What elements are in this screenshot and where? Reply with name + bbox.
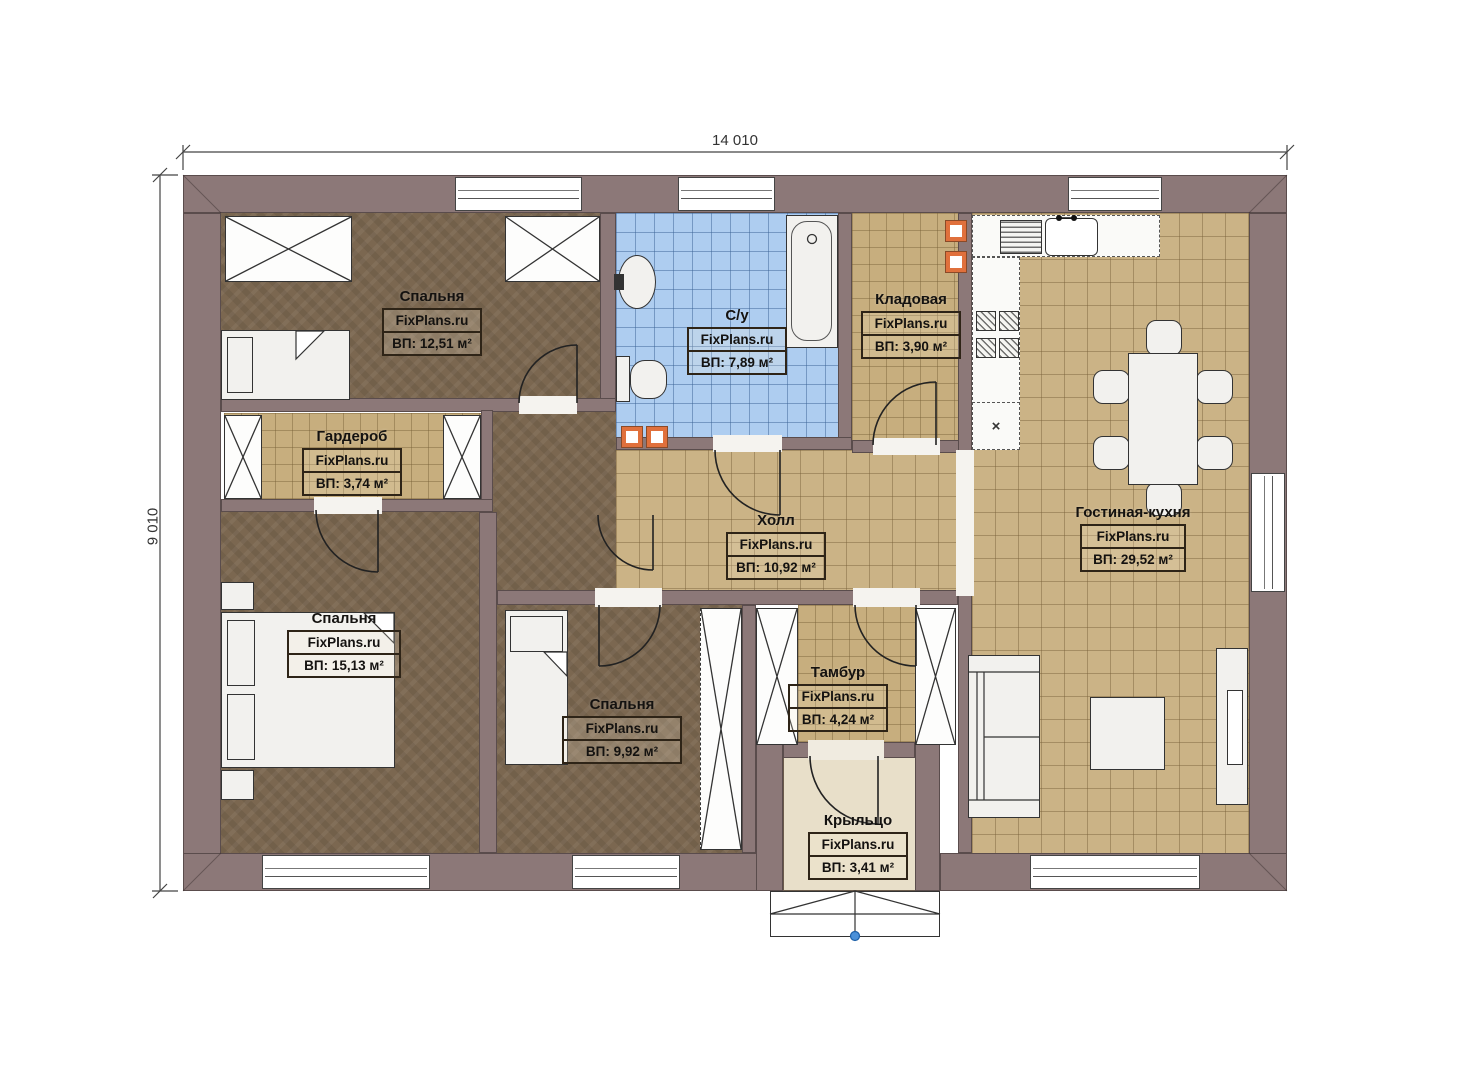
room-info-box: FixPlans.ru ВП: 12,51 м² bbox=[382, 308, 482, 356]
room-name: Спальня bbox=[347, 288, 517, 306]
toilet-tank bbox=[616, 356, 630, 402]
nightstand bbox=[221, 770, 254, 800]
chair bbox=[1196, 436, 1233, 470]
closet-wardrobe-left bbox=[224, 415, 262, 499]
wall-exterior-left bbox=[183, 213, 221, 891]
room-area: ВП: 7,89 м² bbox=[689, 352, 785, 373]
wall-wardrobe-right bbox=[481, 410, 493, 510]
room-name: С/у bbox=[652, 307, 822, 325]
doorway-storage bbox=[873, 438, 940, 455]
room-label-porch: Крыльцо FixPlans.ru ВП: 3,41 м² bbox=[773, 812, 943, 880]
watermark: FixPlans.ru bbox=[790, 686, 886, 709]
room-name: Кладовая bbox=[826, 291, 996, 309]
stove-burner bbox=[999, 311, 1019, 331]
room-info-box: FixPlans.ru ВП: 9,92 м² bbox=[562, 716, 682, 764]
watermark: FixPlans.ru bbox=[728, 534, 824, 557]
opening-hall-living bbox=[956, 450, 974, 596]
room-area: ВП: 4,24 м² bbox=[790, 709, 886, 730]
window-kitchen bbox=[1068, 177, 1162, 211]
room-label-bedroom-bottom-left: Спальня FixPlans.ru ВП: 15,13 м² bbox=[259, 610, 429, 678]
kitchen-cabinet: × bbox=[972, 402, 1020, 450]
room-label-hall: Холл FixPlans.ru ВП: 10,92 м² bbox=[691, 512, 861, 580]
room-info-box: FixPlans.ru ВП: 3,41 м² bbox=[808, 832, 908, 880]
room-area: ВП: 9,92 м² bbox=[564, 741, 680, 762]
watermark: FixPlans.ru bbox=[564, 718, 680, 741]
dimension-height: 9 010 bbox=[145, 492, 162, 562]
room-info-box: FixPlans.ru ВП: 7,89 м² bbox=[687, 327, 787, 375]
room-name: Тамбур bbox=[753, 664, 923, 682]
vent-block bbox=[946, 252, 966, 272]
room-name: Холл bbox=[691, 512, 861, 530]
room-name: Спальня bbox=[537, 696, 707, 714]
room-info-box: FixPlans.ru ВП: 29,52 м² bbox=[1080, 524, 1186, 572]
watermark: FixPlans.ru bbox=[863, 313, 959, 336]
window-bathroom bbox=[678, 177, 775, 211]
doorway-entrance bbox=[808, 740, 884, 760]
watermark: FixPlans.ru bbox=[1082, 526, 1184, 549]
room-area: ВП: 3,41 м² bbox=[810, 857, 906, 878]
room-label-wardrobe: Гардероб FixPlans.ru ВП: 3,74 м² bbox=[267, 428, 437, 496]
room-area: ВП: 29,52 м² bbox=[1082, 549, 1184, 570]
dining-table bbox=[1128, 353, 1198, 485]
chair bbox=[1196, 370, 1233, 404]
nightstand bbox=[221, 582, 254, 610]
pillow bbox=[227, 620, 255, 686]
window-living-right bbox=[1251, 473, 1285, 592]
room-area: ВП: 3,74 м² bbox=[304, 473, 400, 494]
closet-wardrobe-right bbox=[443, 415, 481, 499]
doorway-bathroom bbox=[713, 435, 782, 452]
vent-block bbox=[622, 427, 642, 447]
room-info-box: FixPlans.ru ВП: 3,74 м² bbox=[302, 448, 402, 496]
closet-bedroom1-right bbox=[505, 216, 600, 282]
porch-steps bbox=[770, 891, 940, 937]
window-bedroom3 bbox=[572, 855, 680, 889]
chair bbox=[1093, 436, 1130, 470]
tv bbox=[1227, 690, 1243, 765]
window-bedroom2 bbox=[262, 855, 430, 889]
doorway-bedroom2 bbox=[314, 497, 382, 514]
room-name: Спальня bbox=[259, 610, 429, 628]
room-name: Крыльцо bbox=[773, 812, 943, 830]
room-area: ВП: 12,51 м² bbox=[384, 333, 480, 354]
room-label-bedroom-top-left: Спальня FixPlans.ru ВП: 12,51 м² bbox=[347, 288, 517, 356]
watermark: FixPlans.ru bbox=[810, 834, 906, 857]
room-label-living-kitchen: Гостиная-кухня FixPlans.ru ВП: 29,52 м² bbox=[1048, 504, 1218, 572]
room-label-bathroom: С/у FixPlans.ru ВП: 7,89 м² bbox=[652, 307, 822, 375]
room-name: Гардероб bbox=[267, 428, 437, 446]
room-area: ВП: 3,90 м² bbox=[863, 336, 959, 357]
pillow bbox=[227, 337, 253, 393]
chair bbox=[1146, 320, 1182, 356]
room-info-box: FixPlans.ru ВП: 3,90 м² bbox=[861, 311, 961, 359]
pillow bbox=[227, 694, 255, 760]
pillow bbox=[510, 616, 563, 652]
stove-burner bbox=[999, 338, 1019, 358]
watermark: FixPlans.ru bbox=[384, 310, 480, 333]
vent-block bbox=[647, 427, 667, 447]
closet-bedroom1-left bbox=[225, 216, 352, 282]
room-label-storage: Кладовая FixPlans.ru ВП: 3,90 м² bbox=[826, 291, 996, 359]
watermark: FixPlans.ru bbox=[689, 329, 785, 352]
room-info-box: FixPlans.ru ВП: 10,92 м² bbox=[726, 532, 826, 580]
room-area: ВП: 15,13 м² bbox=[289, 655, 399, 676]
doorway-bedroom3 bbox=[595, 588, 662, 607]
watermark: FixPlans.ru bbox=[304, 450, 400, 473]
room-name: Гостиная-кухня bbox=[1048, 504, 1218, 522]
kitchen-sink bbox=[1045, 218, 1098, 256]
room-label-bedroom-bottom-mid: Спальня FixPlans.ru ВП: 9,92 м² bbox=[537, 696, 707, 764]
chair bbox=[1093, 370, 1130, 404]
room-info-box: FixPlans.ru ВП: 15,13 м² bbox=[287, 630, 401, 678]
wall-bedroom2-right bbox=[479, 512, 497, 853]
dimension-width: 14 010 bbox=[690, 132, 780, 149]
doorway-bedroom1 bbox=[519, 396, 577, 414]
floor-corridor bbox=[493, 410, 616, 605]
coffee-table bbox=[1090, 697, 1165, 770]
watermark: FixPlans.ru bbox=[289, 632, 399, 655]
doorway-vestibule bbox=[853, 588, 920, 607]
room-info-box: FixPlans.ru ВП: 4,24 м² bbox=[788, 684, 888, 732]
sink-drainer bbox=[1000, 220, 1042, 254]
vent-block bbox=[946, 221, 966, 241]
window-bedroom1 bbox=[455, 177, 582, 211]
floor-plan-canvas: × bbox=[0, 0, 1473, 1080]
sink-tap bbox=[614, 274, 624, 290]
room-label-vestibule: Тамбур FixPlans.ru ВП: 4,24 м² bbox=[753, 664, 923, 732]
room-area: ВП: 10,92 м² bbox=[728, 557, 824, 578]
sofa bbox=[968, 655, 1040, 818]
window-living bbox=[1030, 855, 1200, 889]
wall-bedroom1-right bbox=[600, 213, 616, 410]
